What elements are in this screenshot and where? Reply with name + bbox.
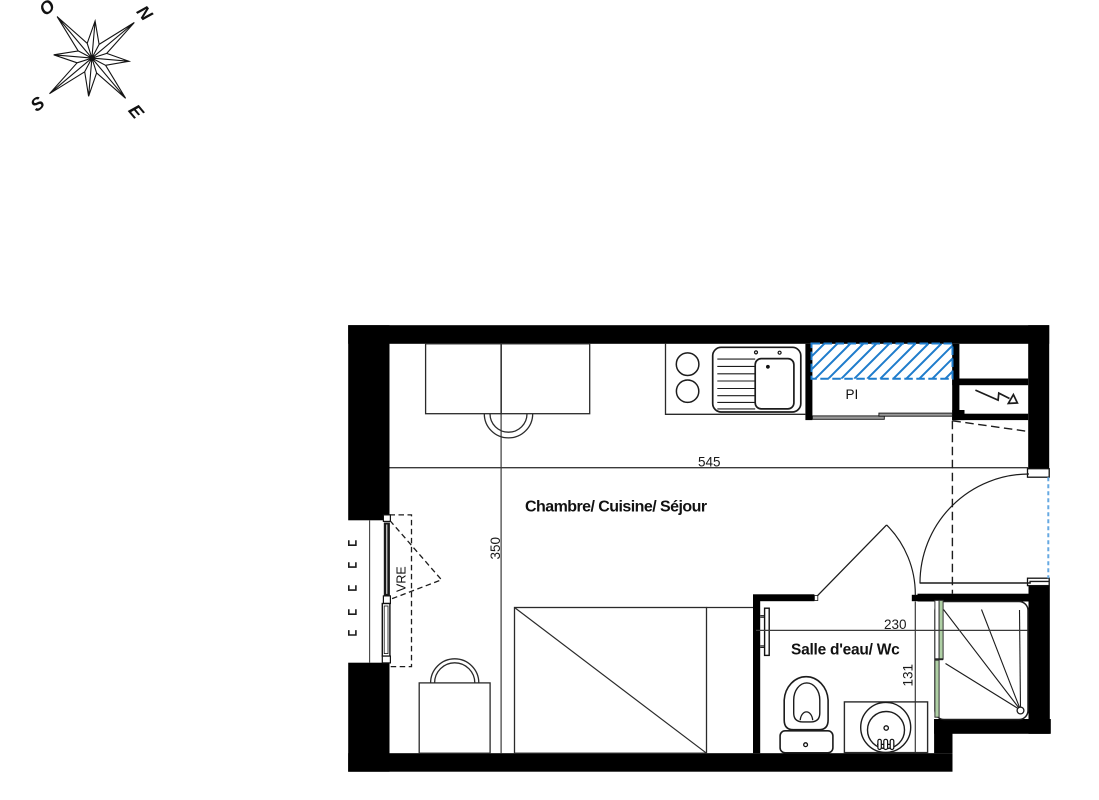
svg-text:Chambre/ Cuisine/ Séjour: Chambre/ Cuisine/ Séjour xyxy=(525,499,707,516)
svg-text:PI: PI xyxy=(846,387,859,402)
svg-text:545: 545 xyxy=(698,455,721,470)
svg-text:131: 131 xyxy=(901,664,916,687)
svg-text:VRE: VRE xyxy=(395,566,409,592)
svg-text:350: 350 xyxy=(488,537,503,560)
svg-text:Salle d'eau/ Wc: Salle d'eau/ Wc xyxy=(791,642,900,659)
